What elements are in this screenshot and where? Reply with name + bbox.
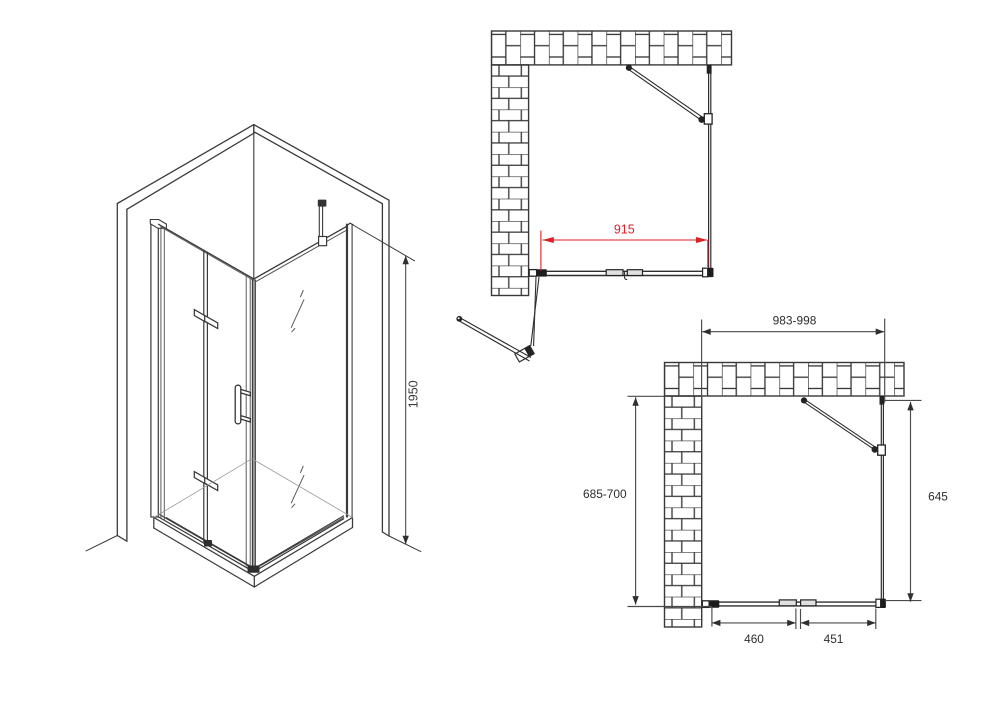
svg-text:983-998: 983-998 [773,313,817,327]
svg-text:645: 645 [928,490,948,504]
svg-text:1950: 1950 [406,380,420,408]
svg-text:915: 915 [614,222,635,236]
svg-text:451: 451 [824,632,844,646]
svg-text:685-700: 685-700 [583,487,627,501]
svg-text:460: 460 [744,632,764,646]
